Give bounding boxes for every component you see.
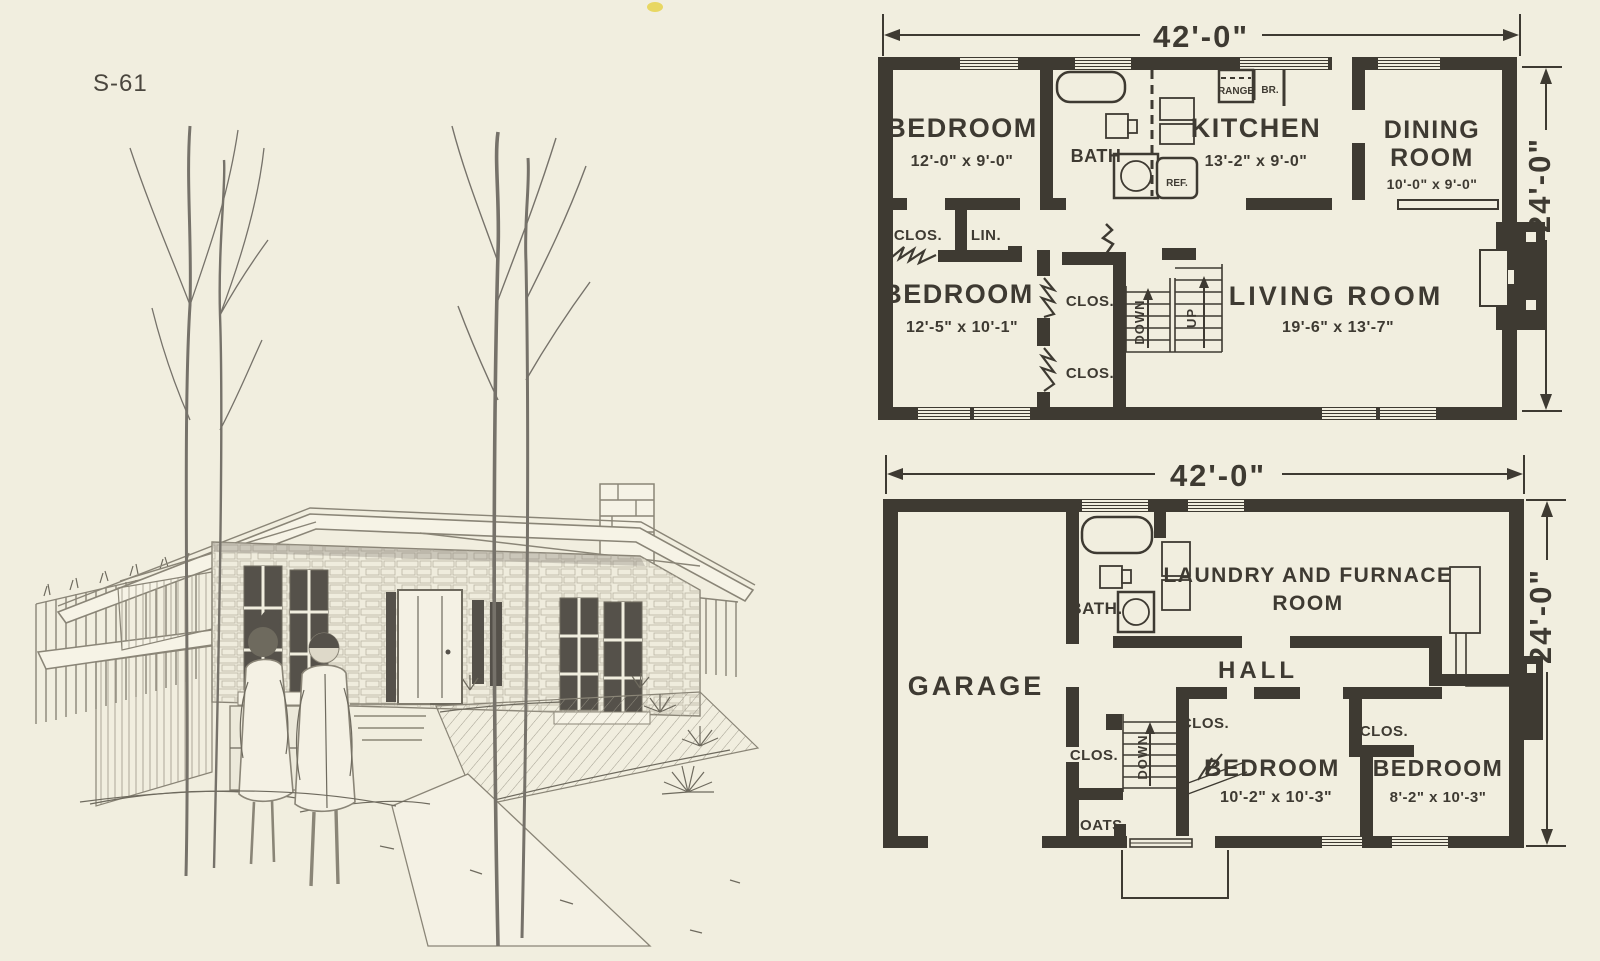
lower-bedroom2-dims: 8'-2" x 10'-3" xyxy=(1390,789,1487,806)
broom-label: BR. xyxy=(1261,85,1278,96)
entry-door xyxy=(386,590,462,704)
house-illustration xyxy=(0,0,860,961)
upper-clos-label-1: CLOS. xyxy=(894,227,942,244)
lower-bedroom1-label: BEDROOM xyxy=(1204,755,1340,782)
lower-bedroom1-dims: 10'-2" x 10'-3" xyxy=(1220,789,1332,806)
furnace xyxy=(1450,567,1509,686)
upper-bedroom1-label: BEDROOM xyxy=(886,113,1038,143)
lower-width-dim-label: 42'-0" xyxy=(1170,458,1266,493)
dining-label-2: ROOM xyxy=(1390,144,1474,172)
kitchen-dims: 13'-2" x 9'-0" xyxy=(1205,153,1308,170)
siding-wall xyxy=(96,572,212,806)
lower-down-label: DOWN xyxy=(1135,734,1150,779)
lower-chimney xyxy=(1509,656,1543,740)
upper-bath-fixtures xyxy=(1057,72,1158,198)
upper-down-label: DOWN xyxy=(1132,299,1147,344)
upper-width-dimension: 42'-0" xyxy=(883,14,1520,56)
ref-label: REF. xyxy=(1166,178,1188,189)
upper-bath-label: BATH xyxy=(1071,146,1122,166)
dining-dims: 10'-0" x 9'-0" xyxy=(1387,176,1478,192)
lin-label: LIN. xyxy=(971,227,1001,244)
entry-door-plan xyxy=(1122,839,1228,898)
laundry-label-1: LAUNDRY AND FURNACE xyxy=(1163,564,1452,587)
lower-width-dimension: 42'-0" xyxy=(886,455,1524,494)
upper-width-dim-label: 42'-0" xyxy=(1153,19,1249,54)
dining-label-1: DINING xyxy=(1384,116,1481,144)
lower-clos-label-2: CLOS. xyxy=(1070,747,1118,764)
living-room-dims: 19'-6" x 13'-7" xyxy=(1282,319,1394,336)
upper-height-dim-label: 24'-0" xyxy=(1522,137,1557,233)
lower-floor-plan: 42'-0" 24'-0" xyxy=(855,445,1570,921)
lower-height-dim-label: 24'-0" xyxy=(1523,568,1558,664)
laundry-label-2: ROOM xyxy=(1272,592,1343,615)
upper-bedroom2-dims: 12'-5" x 10'-1" xyxy=(906,319,1018,336)
upper-clos-label-3: CLOS. xyxy=(1066,365,1114,382)
hall-label: HALL xyxy=(1218,657,1298,684)
upper-bedroom1-dims: 12'-0" x 9'-0" xyxy=(911,153,1014,170)
range-label: RANGE xyxy=(1218,86,1254,97)
upper-stairs: DOWN UP xyxy=(1126,264,1222,352)
fireplace xyxy=(1480,222,1545,330)
garage-label: GARAGE xyxy=(908,671,1045,701)
living-room-label: LIVING ROOM xyxy=(1229,281,1444,311)
upper-floor-plan: 42'-0" 24'-0" xyxy=(855,10,1570,430)
scan-mark xyxy=(647,2,663,12)
kitchen-label: KITCHEN xyxy=(1191,113,1322,143)
lower-clos-label-1: CLOS. xyxy=(1181,715,1229,732)
upper-up-label: UP xyxy=(1184,308,1199,328)
upper-bedroom2-label: BEDROOM xyxy=(882,279,1034,309)
lower-bath-label: BATH. xyxy=(1069,599,1122,618)
coats-label: COATS. xyxy=(1069,817,1128,834)
catalog-page: S-61 xyxy=(0,0,1600,961)
lower-bedroom2-label: BEDROOM xyxy=(1373,755,1504,781)
lower-clos-label-3: CLOS. xyxy=(1360,723,1408,740)
upper-clos-label-2: CLOS. xyxy=(1066,293,1114,310)
